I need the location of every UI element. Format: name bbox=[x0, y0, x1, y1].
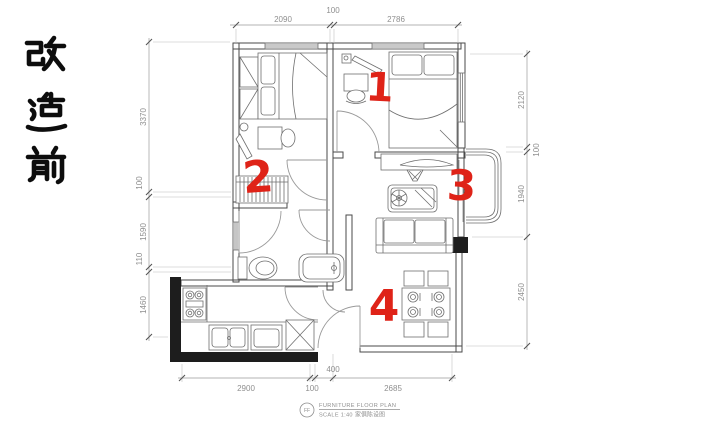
sofa bbox=[376, 218, 453, 253]
door-bedroom2 bbox=[287, 160, 327, 200]
door-bedroom1 bbox=[337, 111, 379, 153]
dim-label: 110 bbox=[135, 252, 144, 265]
chair bbox=[347, 90, 365, 102]
room-marker-2: 2 bbox=[241, 151, 275, 204]
dim-label: 2685 bbox=[384, 384, 402, 393]
drawing-title-cn: 家俱陈设图 bbox=[355, 411, 385, 419]
column bbox=[451, 237, 468, 253]
dim-label: 100 bbox=[326, 6, 340, 15]
pillow bbox=[261, 87, 275, 115]
floor-plan-screenshot: 改造前 bbox=[0, 0, 720, 433]
dim-label: 1460 bbox=[139, 296, 148, 314]
dim-label: 1940 bbox=[517, 185, 526, 203]
pillow bbox=[261, 56, 275, 84]
pillow bbox=[424, 55, 454, 75]
pillow bbox=[392, 55, 422, 75]
door-kitchen bbox=[285, 287, 318, 320]
mirror bbox=[240, 123, 248, 131]
dining-set bbox=[402, 271, 450, 337]
desk bbox=[258, 127, 282, 149]
drawing-scale: SCALE 1:40 bbox=[319, 413, 353, 419]
door-bathroom-left bbox=[239, 211, 281, 253]
window-top-left bbox=[265, 43, 318, 49]
coffee-table bbox=[388, 185, 437, 212]
shelf bbox=[342, 54, 351, 63]
washing-machine bbox=[286, 320, 314, 350]
title-block-symbol-label: FF bbox=[304, 408, 310, 414]
bathtub bbox=[299, 254, 344, 282]
dim-label: 100 bbox=[135, 176, 144, 190]
floor-plan-canvas: 1 2 3 4 2090 100 2786 3370 100 1590 110 … bbox=[0, 0, 720, 433]
room-marker-1: 1 bbox=[365, 64, 395, 111]
dim-label: 100 bbox=[305, 384, 319, 393]
tv-symbol bbox=[407, 170, 423, 181]
toilet bbox=[238, 257, 277, 279]
sink bbox=[209, 325, 248, 350]
title-block: FF FURNITURE FLOOR PLAN SCALE 1:40 家俱陈设图 bbox=[300, 403, 400, 419]
chair bbox=[404, 271, 424, 286]
window-top-right bbox=[372, 43, 424, 49]
door-hall bbox=[323, 290, 345, 312]
dim-label: 3370 bbox=[139, 108, 148, 126]
dim-label: 400 bbox=[326, 365, 340, 374]
door-entry bbox=[318, 306, 360, 348]
dim-label: 2090 bbox=[274, 15, 292, 24]
bedroom1-furniture bbox=[342, 52, 457, 148]
dim-label: 2120 bbox=[517, 91, 526, 109]
chair bbox=[404, 322, 424, 337]
thick-wall-left bbox=[170, 277, 181, 362]
window-right bbox=[458, 73, 465, 122]
dimension-top: 2090 100 2786 bbox=[230, 6, 462, 43]
bathroom-furniture bbox=[238, 254, 344, 282]
dim-label: 2900 bbox=[237, 384, 255, 393]
dim-label: 2786 bbox=[387, 15, 405, 24]
drawing-title: FURNITURE FLOOR PLAN bbox=[319, 403, 396, 409]
before-renovation-label bbox=[27, 38, 65, 182]
kitchen-appliance bbox=[251, 325, 282, 350]
dim-label: 100 bbox=[532, 143, 541, 157]
door-bathroom-right bbox=[299, 210, 330, 241]
room-marker-4: 4 bbox=[369, 281, 400, 332]
chair bbox=[428, 322, 448, 337]
stove bbox=[183, 288, 206, 320]
window-bathroom bbox=[233, 222, 239, 250]
dimension-right: 2120 100 1940 2450 bbox=[466, 50, 541, 350]
dim-label: 1590 bbox=[139, 223, 148, 241]
kitchen-furniture bbox=[181, 285, 318, 350]
dim-label: 2450 bbox=[517, 283, 526, 301]
desk bbox=[344, 74, 368, 91]
chair bbox=[281, 129, 295, 147]
thick-wall-bottom bbox=[170, 352, 318, 362]
chair bbox=[428, 271, 448, 286]
room-marker-3: 3 bbox=[446, 161, 477, 211]
